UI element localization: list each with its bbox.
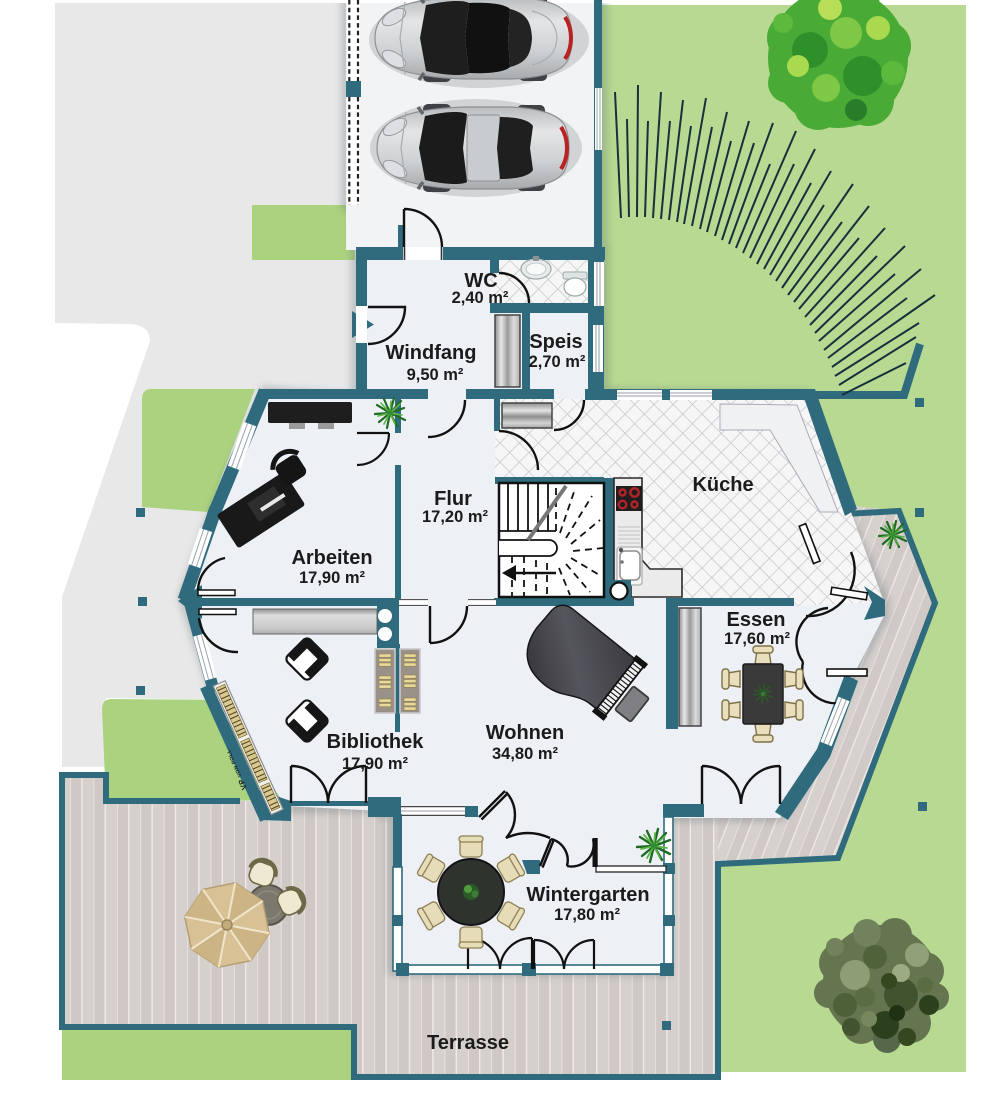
svg-text:Wintergarten: Wintergarten [526, 884, 649, 906]
svg-text:Arbeiten: Arbeiten [291, 547, 372, 569]
svg-text:Flur: Flur [434, 488, 472, 510]
svg-text:17,90 m²: 17,90 m² [342, 755, 409, 773]
svg-text:17,20 m²: 17,20 m² [422, 508, 489, 526]
svg-text:Windfang: Windfang [386, 342, 477, 364]
svg-text:Küche: Küche [692, 474, 753, 496]
svg-text:Essen: Essen [727, 609, 786, 631]
svg-text:Terrasse: Terrasse [427, 1032, 509, 1054]
svg-text:Bibliothek: Bibliothek [327, 731, 425, 753]
svg-text:17,90 m²: 17,90 m² [299, 569, 366, 587]
svg-text:9,50 m²: 9,50 m² [407, 366, 464, 384]
svg-text:34,80 m²: 34,80 m² [492, 745, 559, 763]
svg-text:17,80 m²: 17,80 m² [554, 906, 621, 924]
svg-text:2,70 m²: 2,70 m² [529, 353, 586, 371]
svg-text:17,60 m²: 17,60 m² [724, 630, 791, 648]
svg-text:Wohnen: Wohnen [486, 722, 565, 744]
svg-text:Speis: Speis [529, 331, 582, 353]
svg-text:2,40 m²: 2,40 m² [452, 289, 509, 307]
